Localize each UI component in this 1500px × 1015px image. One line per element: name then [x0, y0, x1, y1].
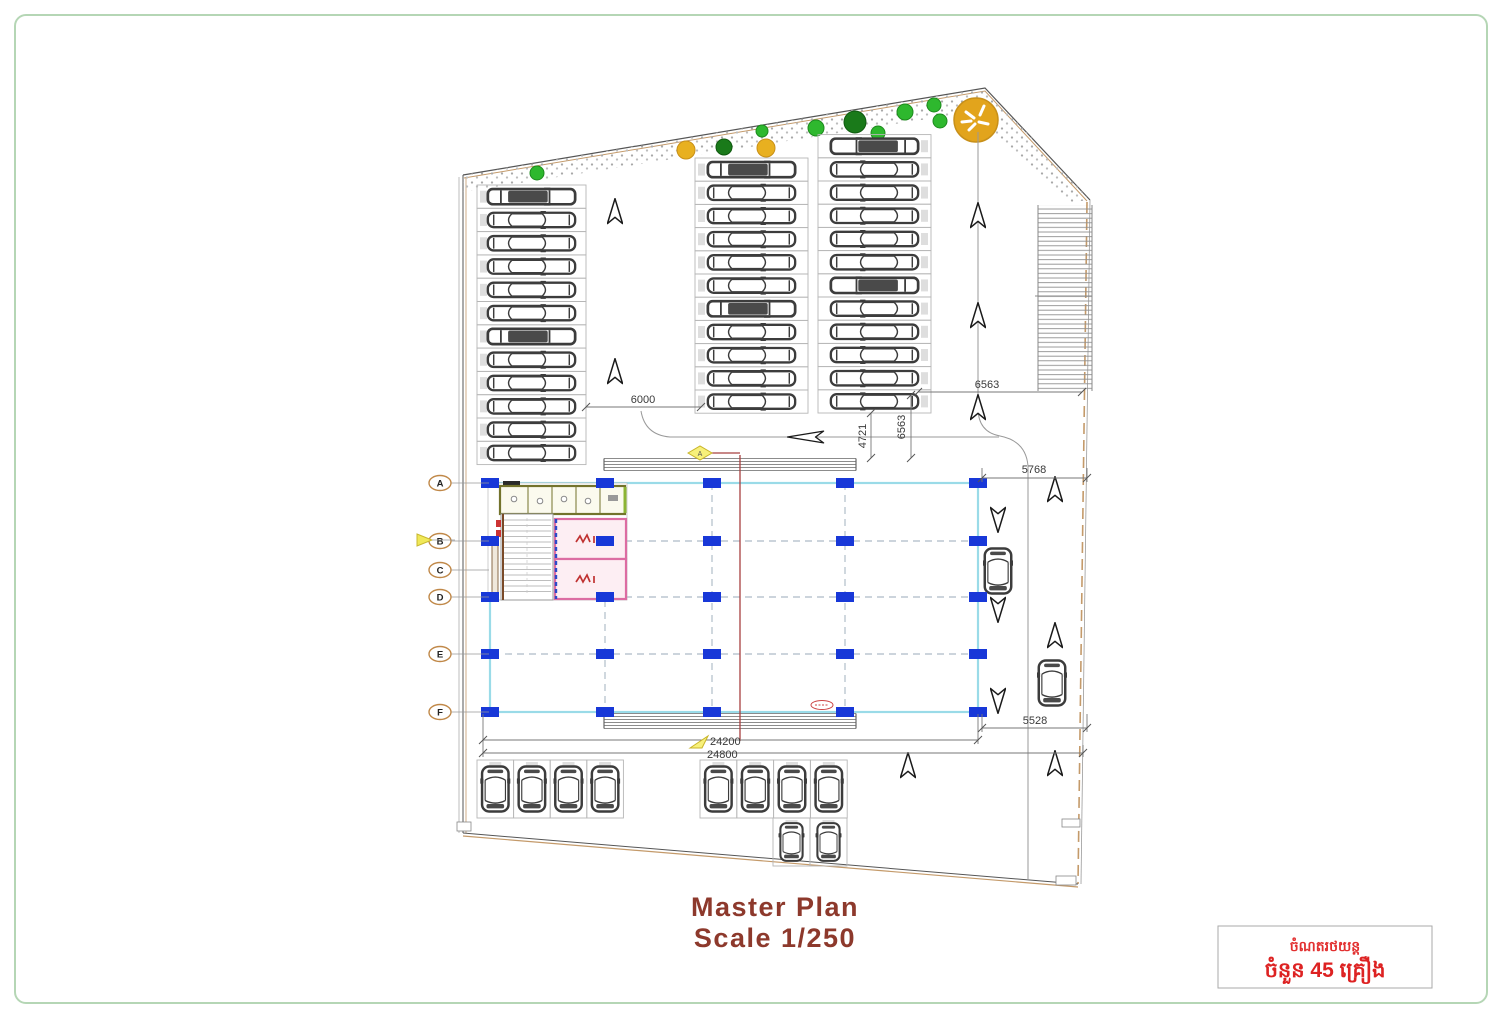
car-icon	[708, 253, 795, 272]
car-icon	[703, 767, 734, 812]
car-icon	[488, 397, 575, 416]
car-icon	[708, 160, 795, 179]
car-icon	[983, 549, 1014, 594]
car-icon	[831, 230, 918, 249]
car-icon	[831, 299, 918, 318]
car-icon	[488, 234, 575, 253]
toilet-fixture	[608, 495, 618, 501]
car-icon	[480, 767, 511, 812]
car-icon	[590, 767, 621, 812]
car-icon	[488, 257, 575, 276]
column-icon	[969, 592, 987, 602]
dim-setback-front2: 6563	[896, 415, 908, 439]
car-icon	[831, 206, 918, 225]
parking-north-left	[477, 185, 586, 465]
drawing-scale: Scale 1/250	[694, 923, 856, 953]
column-icon	[596, 592, 614, 602]
flow-arrow-up-icon	[970, 395, 985, 420]
car-icon	[831, 322, 918, 341]
car-icon	[831, 276, 918, 295]
column-icon	[969, 649, 987, 659]
ramp-stair	[492, 514, 553, 600]
parking-north-center	[695, 158, 808, 413]
car-icon	[708, 299, 795, 318]
car-icon	[831, 160, 918, 179]
column-icon	[596, 707, 614, 717]
column-icon	[703, 707, 721, 717]
column-icon	[836, 478, 854, 488]
large-tree-icon	[954, 98, 998, 142]
car-icon	[488, 444, 575, 463]
car-icon	[488, 350, 575, 369]
plan-sheet: A	[0, 0, 1500, 1015]
car-icon	[831, 346, 918, 365]
car-icon	[708, 346, 795, 365]
car-icon	[488, 374, 575, 393]
dim-building-span-inner: 24200	[710, 736, 741, 748]
dim-drive-southeast: 5528	[1023, 715, 1047, 727]
parking-south-east	[700, 760, 847, 818]
column-icon	[836, 592, 854, 602]
grid-bubble-label: F	[437, 707, 443, 718]
flow-arrow-down-icon	[990, 688, 1005, 713]
dim-building-span-outer: 24800	[707, 749, 738, 761]
car-icon	[779, 823, 805, 861]
car-icon	[553, 767, 584, 812]
column-icon	[703, 649, 721, 659]
parking-south-east-lower	[773, 818, 847, 866]
canopy-band-north	[604, 459, 856, 471]
dim-setback-front: 4721	[857, 424, 869, 448]
flow-arrow-up-icon	[607, 199, 622, 224]
flow-arrow-up-icon	[1047, 751, 1062, 776]
car-icon	[488, 420, 575, 439]
column-icon	[969, 536, 987, 546]
flow-arrow-up-icon	[607, 359, 622, 384]
master-plan-drawing: A	[0, 0, 1500, 1015]
stamp-line2: ចំនួន 45 គ្រឿង	[1265, 956, 1386, 985]
stamp-line1: ចំណតរថយន្ត	[1290, 937, 1360, 955]
car-icon	[708, 183, 795, 202]
car-icon	[488, 211, 575, 230]
car-icon	[831, 183, 918, 202]
revision-stamp-icon	[811, 701, 833, 710]
column-icon	[836, 707, 854, 717]
car-icon	[831, 369, 918, 388]
boundary-notch	[1056, 876, 1076, 885]
section-marker-label: A	[698, 451, 703, 458]
column-icon	[703, 536, 721, 546]
grid-bubble-label: B	[437, 536, 444, 547]
grid-bubble-label: D	[437, 592, 444, 603]
car-icon	[813, 767, 844, 812]
boundary-notch	[1062, 819, 1080, 827]
car-icon	[488, 280, 575, 299]
toilet-block	[500, 486, 625, 514]
car-icon	[516, 767, 547, 812]
dim-drive-northeast: 5768	[1022, 464, 1046, 476]
column-icon	[596, 649, 614, 659]
car-icon	[777, 767, 808, 812]
dim-east-drive-width: 6563	[975, 379, 999, 391]
car-icon	[488, 304, 575, 323]
canopy-band-south	[604, 714, 856, 729]
car-icon	[708, 230, 795, 249]
ramp-hatch	[1035, 205, 1092, 391]
car-icon	[708, 276, 795, 295]
flow-arrow-up-icon	[1047, 623, 1062, 648]
flow-arrow-down-icon	[990, 597, 1005, 622]
column-icon	[836, 536, 854, 546]
grid-bubble-label: A	[437, 478, 444, 489]
flow-arrow-up-icon	[900, 753, 915, 778]
lift-rooms	[555, 519, 626, 599]
column-icon	[596, 478, 614, 488]
car-icon	[708, 323, 795, 342]
parking-north-east	[818, 135, 931, 413]
car-icon	[708, 207, 795, 226]
parking-south-west	[477, 760, 623, 818]
car-icon	[831, 136, 918, 155]
car-icon	[708, 369, 795, 388]
column-icon	[836, 649, 854, 659]
car-icon	[831, 253, 918, 272]
span-marker-flag	[690, 736, 708, 748]
car-icon	[1037, 661, 1068, 706]
dim-aisle-width: 6000	[631, 394, 655, 406]
car-icon	[831, 392, 918, 411]
car-icon	[816, 823, 842, 861]
boundary-notch	[457, 822, 471, 831]
car-icon	[740, 767, 771, 812]
drawing-title: Master Plan	[691, 892, 859, 922]
column-icon	[703, 592, 721, 602]
car-icon	[488, 327, 575, 346]
column-icon	[703, 478, 721, 488]
flow-arrow-down-icon	[990, 507, 1005, 532]
grid-bubble-label: E	[437, 649, 443, 660]
car-icon	[488, 187, 575, 206]
car-icon	[708, 392, 795, 411]
column-icon	[596, 536, 614, 546]
column-icon	[969, 478, 987, 488]
flow-arrow-up-icon	[1047, 477, 1062, 502]
grid-bubble-label: C	[437, 565, 444, 576]
stamp-box: ចំណតរថយន្ត ចំនួន 45 គ្រឿង	[1218, 926, 1432, 988]
